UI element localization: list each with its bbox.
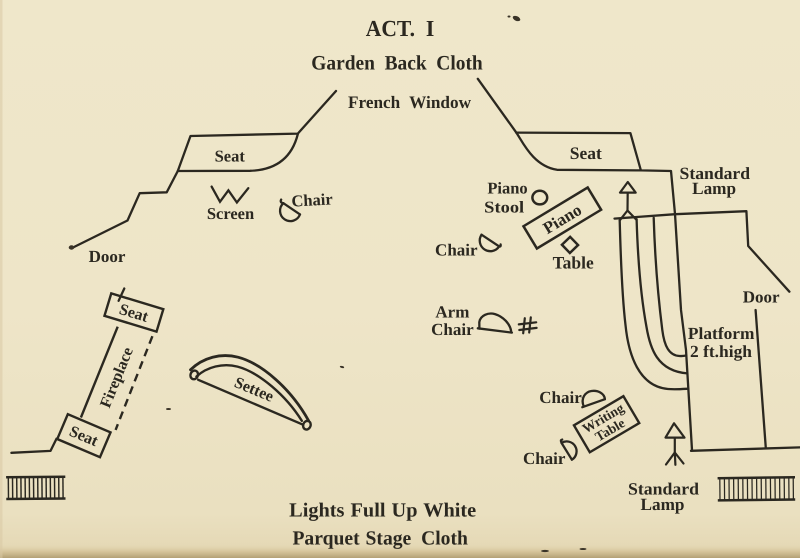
svg-text:Lights Full Up White: Lights Full Up White (289, 500, 476, 522)
svg-text:Chair: Chair (523, 449, 566, 468)
svg-text:ACT. I: ACT. I (366, 16, 435, 41)
svg-text:Garden Back Cloth: Garden Back Cloth (311, 53, 483, 75)
svg-text:Stool: Stool (484, 197, 524, 216)
svg-text:Seat: Seat (215, 147, 246, 166)
svg-text:Chair: Chair (539, 388, 582, 407)
svg-text:Lamp: Lamp (692, 179, 736, 198)
svg-text:Screen: Screen (207, 204, 254, 223)
svg-text:Seat: Seat (570, 143, 602, 163)
svg-text:Parquet Stage Cloth: Parquet Stage Cloth (292, 528, 468, 550)
svg-text:Chair: Chair (435, 241, 478, 260)
svg-text:Platform: Platform (688, 324, 755, 343)
svg-text:Piano: Piano (487, 179, 527, 198)
svg-text:Arm: Arm (435, 303, 469, 322)
svg-text:Chair: Chair (431, 320, 474, 339)
svg-text:Lamp: Lamp (641, 495, 685, 514)
svg-text:Table: Table (553, 253, 594, 273)
svg-text:2 ft.high: 2 ft.high (690, 342, 753, 361)
svg-text:Chair: Chair (291, 189, 333, 210)
svg-text:French Window: French Window (348, 92, 471, 112)
svg-text:Door: Door (89, 247, 126, 266)
svg-text:Door: Door (743, 288, 780, 307)
